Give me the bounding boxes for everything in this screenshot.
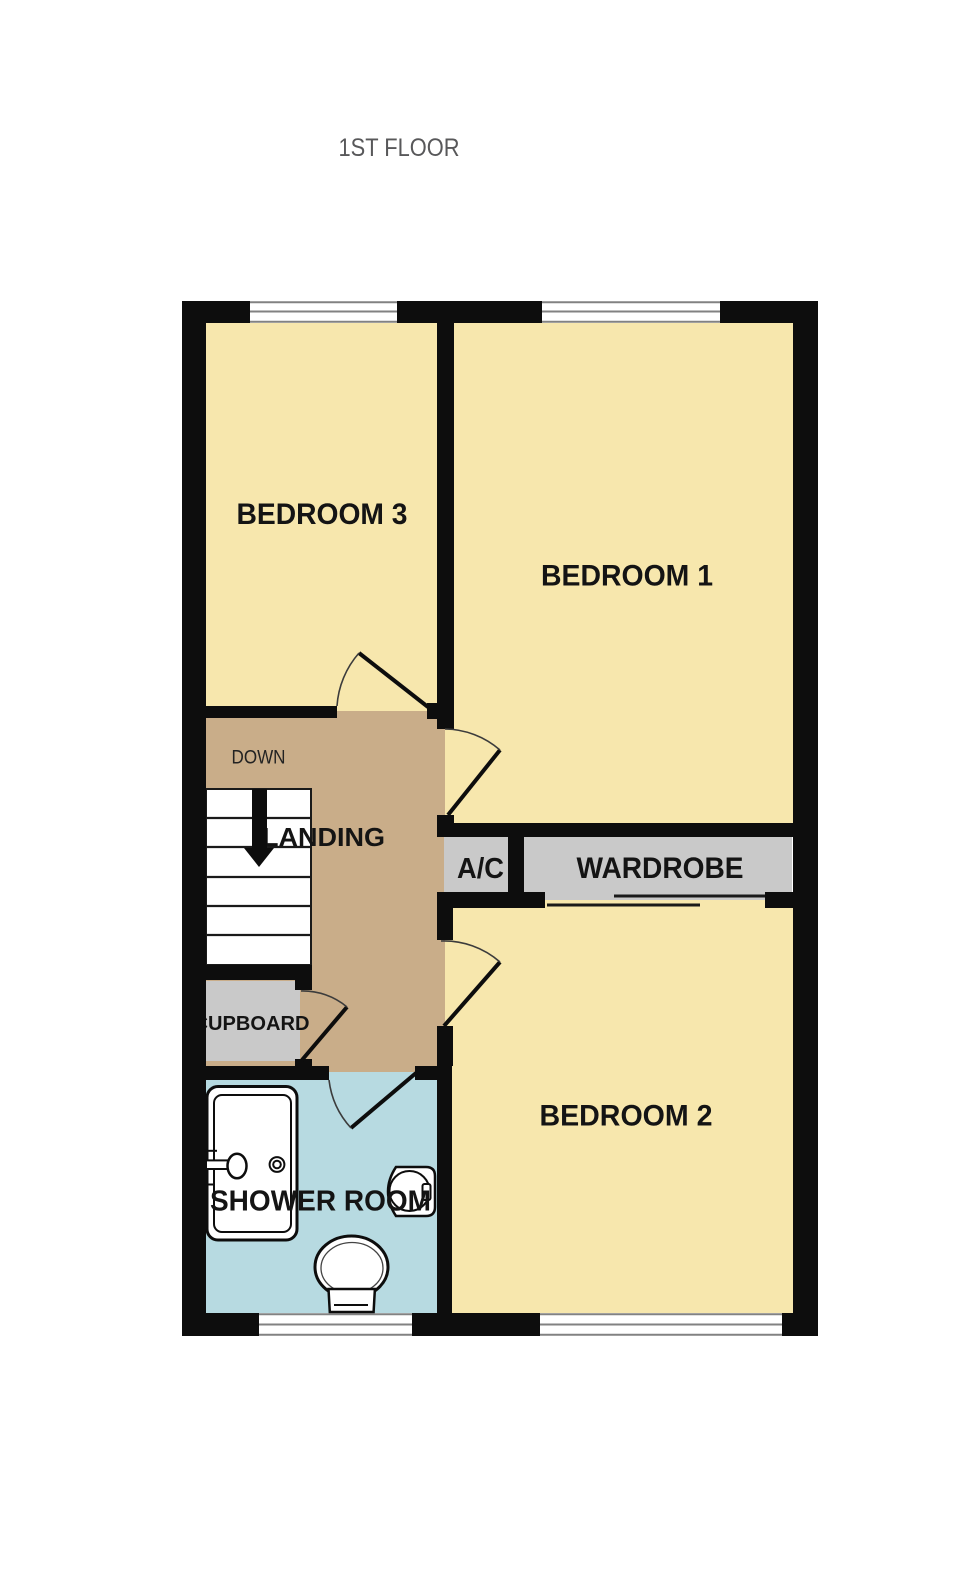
svg-text:SHOWER ROOM: SHOWER ROOM [210,1186,431,1218]
svg-text:BEDROOM 2: BEDROOM 2 [540,1100,713,1133]
svg-text:LANDING: LANDING [262,822,385,852]
svg-text:DOWN: DOWN [232,748,286,769]
svg-text:A/C: A/C [457,853,504,885]
svg-text:CUPBOARD: CUPBOARD [194,1013,310,1035]
svg-text:1ST FLOOR: 1ST FLOOR [339,134,460,162]
svg-text:BEDROOM 1: BEDROOM 1 [541,560,713,593]
svg-text:BEDROOM 3: BEDROOM 3 [237,498,408,531]
svg-text:WARDROBE: WARDROBE [577,852,744,885]
